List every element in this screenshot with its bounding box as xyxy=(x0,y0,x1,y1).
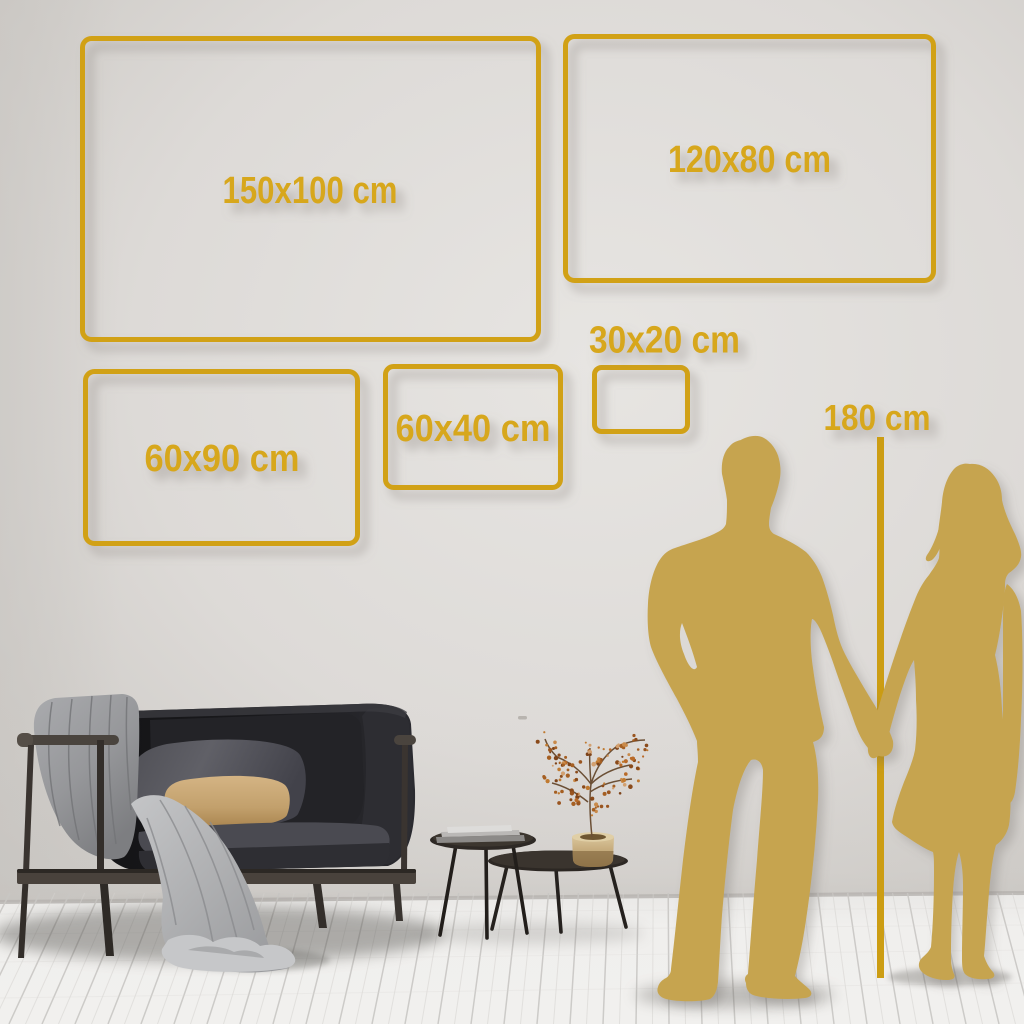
svg-text:60x40 cm: 60x40 cm xyxy=(396,408,551,450)
svg-text:120x80 cm: 120x80 cm xyxy=(668,139,831,181)
svg-text:60x90 cm: 60x90 cm xyxy=(145,438,300,480)
svg-text:30x20 cm: 30x20 cm xyxy=(589,320,740,362)
svg-text:150x100 cm: 150x100 cm xyxy=(223,170,398,212)
svg-text:180 cm: 180 cm xyxy=(824,397,931,438)
